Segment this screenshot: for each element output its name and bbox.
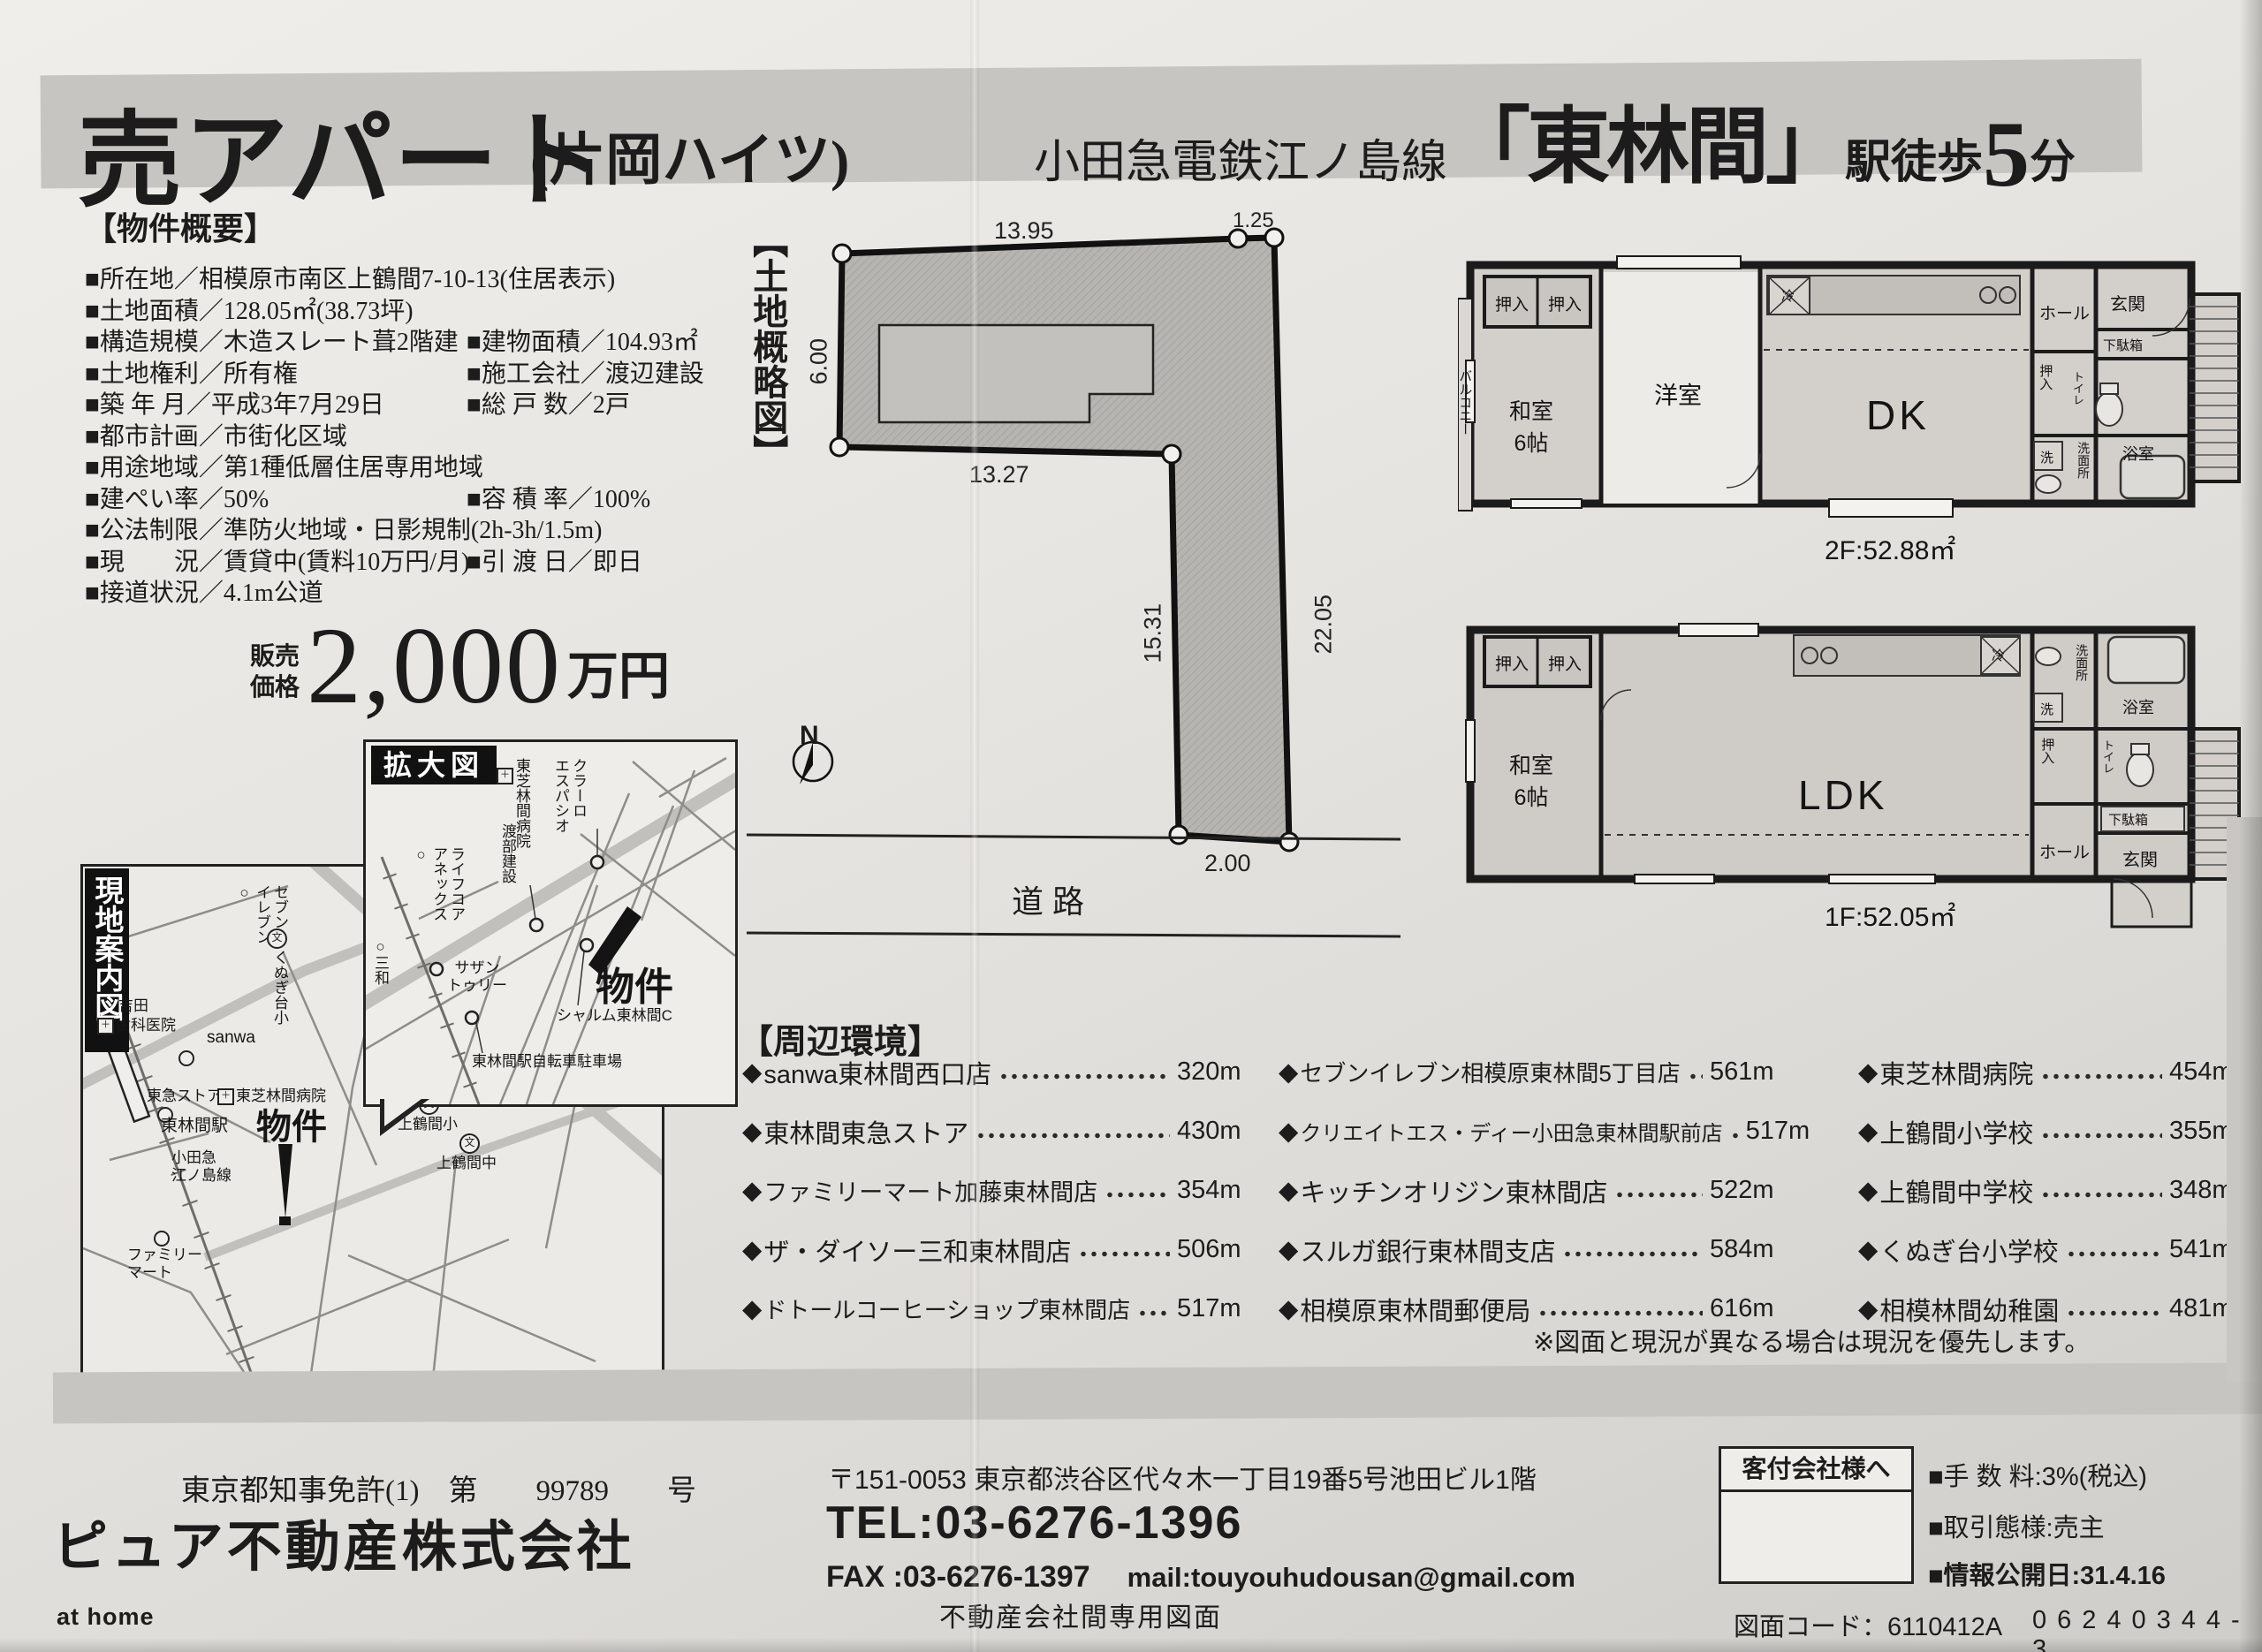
poi-row: ◆東林間東急ストア430m [742,1118,1265,1145]
poi-name: 相模原東林間郵便局 [1300,1291,1530,1328]
poi-row: ◆ファミリーマート加藤東林間店354m [742,1177,1265,1204]
map-label-kamitsuruma-jhs: 上鶴間中 [436,1155,497,1172]
diamond-icon: ◆ [742,1175,762,1206]
poi-name: 東林間東急ストア [763,1113,968,1150]
fixture-washer: 洗 [2040,700,2053,718]
company-name: ピュア不動産株式会社 [53,1502,635,1581]
room-closet: 押入 [1495,292,1529,315]
phone-number: TEL:03-6276-1396 [826,1497,1242,1550]
photo-edge-shadow [0,1638,2262,1652]
north-label: N [800,721,819,751]
diamond-icon: ◆ [742,1057,762,1087]
diamond-icon: ◆ [1279,1293,1298,1324]
map-label-text: 歯科医院 [116,1017,176,1034]
overview-text: ■築 年 月／平成3年7月29日 [85,391,384,419]
room-washroom: 洗面所 [2075,644,2088,706]
poi-distance: 354m [1177,1176,1265,1205]
surroundings-col3: ◆東芝林間病院454m ◆上鶴間小学校355m ◆上鶴間中学校348m ◆くぬぎ… [1858,1058,2258,1354]
poi-row: ◆ドトールコーヒーショップ東林間店517m [742,1295,1265,1322]
poi-name: sanwa東林間西口店 [763,1054,991,1091]
poi-row: ◆上鶴間小学校355m [1858,1118,2258,1145]
poi-circle-icon [178,1050,194,1066]
info-date-line: ■情報公開日:31.4.16 [1928,1555,2166,1592]
dot-leader [2040,1191,2162,1199]
poi-row: ◆ザ・ダイソー三和東林間店506m [742,1236,1265,1263]
overview-row: ■土地権利／所有権■施工会社／渡辺建設 [85,354,792,386]
photo-edge-shadow [2239,0,2262,1652]
map-label-lifecore: ライフコア アネックス○ [412,846,465,935]
enlarged-map-title: 拡大図 [371,746,497,784]
map-label-watanabe: 渡部建設 [498,823,516,894]
map-label-toshiba-hospital: ＋東芝林間病院 [217,1087,326,1105]
agent-box: 客付会社様へ [1719,1446,1914,1584]
map-label-kunugidai: くぬぎ台小 [270,950,288,1038]
diamond-icon: ◆ [742,1116,762,1147]
room-closet: 押入 [2038,364,2052,428]
diamond-icon: ◆ [742,1234,762,1265]
poi-name: クリエイトエス・ディー小田急東林間駅前店 [1300,1116,1722,1147]
dot-leader [2066,1309,2162,1317]
hospital-icon: ＋ [217,1088,234,1105]
map-label-text: 東芝林間病院 [236,1087,326,1104]
bubble-tail [384,1096,425,1126]
poi-distance: 320m [1177,1057,1265,1087]
athome-logo: at home [57,1603,155,1631]
poi-row: ◆東芝林間病院454m [1858,1058,2258,1086]
map-label-yoshida: 吉田 [118,997,148,1015]
poi-row: ◆上鶴間中学校348m [1858,1177,2258,1204]
overview-text: ■建ぺい率／50% [85,486,269,513]
property-mark [279,1216,291,1225]
title-right: 小田急電鉄江ノ島線 「東林間」 駅徒歩 5 分 [1034,80,2147,200]
fee-line: ■手 数 料:3%(税込) [1928,1456,2147,1493]
overview-text: ■施工会社／渡辺建設 [467,354,704,390]
overview-text: ■容 積 率／100% [467,480,650,515]
map-label-southern-tree: サザン トゥリー [447,959,507,995]
fax-mail-line: FAX :03-6276-1397 mail:touyouhudousan@gm… [826,1560,1575,1595]
map-label-charme: シャルム東林間C [557,1007,672,1025]
poi-row: ◆相模林間幼稚園481m [1858,1295,2258,1322]
poi-distance: 561m [1710,1057,1798,1087]
poi-distance: 517m [1177,1294,1265,1323]
overview-row: ■土地面積／128.05㎡(38.73坪) [85,292,792,323]
surroundings-col1: ◆sanwa東林間西口店320m ◆東林間東急ストア430m ◆ファミリーマート… [742,1058,1265,1354]
agent-box-title: 客付会社様へ [1721,1449,1911,1492]
company-address: 〒151-0053 東京都渋谷区代々木一丁目19番5号池田ビル1階 [828,1458,1537,1497]
poi-row: ◆キッチンオリジン東林間店522m [1279,1177,1798,1204]
property-arrow-icon [278,1144,292,1218]
overview-row: ■都市計画／市街化区域 [85,417,792,449]
room-toilet: トイレ [2071,371,2084,426]
diamond-icon: ◆ [1858,1293,1878,1324]
surroundings-col2: ◆セブンイレブン相模原東林間5丁目店561m ◆クリエイトエス・ディー小田急東林… [1279,1058,1798,1354]
overview-section: 【物件概要】 ■所在地／相模原市南区上鶴間7-10-13(住居表示) ■土地面積… [85,203,792,605]
floor-plan-1f: 押入 押入 和室 6帖 LDK 冷 洗面所 洗 押入 ホール 浴室 トイレ 下駄… [1458,614,2244,941]
price-unit: 万円 [567,634,670,716]
poi-name: セブンイレブン相模原東林間5丁目店 [1300,1056,1680,1088]
dot-leader [975,1132,1170,1140]
dim-right: 22.05 [1310,575,1338,655]
overview-text: ■都市計画／市街化区域 [85,423,347,451]
dim-top-right: 1.25 [1233,208,1274,233]
school-icon: 文 [459,1133,480,1154]
rail-line-name: 小田急電鉄江ノ島線 [1034,125,1447,200]
poi-name: 東芝林間病院 [1879,1054,2033,1091]
poi-distance: 522m [1710,1176,1798,1205]
diamond-icon: ◆ [1858,1116,1878,1147]
road-label: 道路 [1012,876,1093,922]
fixture-fridge: 冷 [1992,646,2005,664]
overview-text: ■土地権利／所有権 [85,360,298,388]
room-washitsu: 和室 6帖 [1509,748,1553,812]
map-label-bicycle-parking: 東林間駅自転車駐車場 [472,1053,622,1071]
walk-prefix: 駅徒歩 [1845,125,1983,200]
fax-number: FAX :03-6276-1397 [826,1560,1090,1595]
room-bath: 浴室 [2122,442,2154,465]
floor-area-1f: 1F:52.05㎡ [1825,895,1955,934]
room-closet: 押入 [2039,738,2053,798]
overview-row: ■公法制限／準防火地域・日影規制(2h-3h/1.5m) [85,511,792,542]
poi-distance: 616m [1710,1294,1798,1323]
poi-name: キッチンオリジン東林間店 [1300,1172,1607,1209]
room-shoebox: 下駄箱 [2103,336,2143,354]
map-label-station: 東林間駅 [161,1117,228,1136]
diamond-icon: ◆ [1279,1234,1298,1265]
room-entrance: 玄関 [2122,845,2158,871]
poi-name: 上鶴間中学校 [1879,1172,2033,1209]
poi-name: 上鶴間小学校 [1879,1113,2033,1150]
dot-leader [1562,1250,1703,1258]
overview-text: ■総 戸 数／2戸 [467,385,630,421]
diamond-icon: ◆ [742,1293,762,1324]
land-diagram-svg [747,221,1400,954]
agent-box-blank [1721,1492,1911,1579]
poi-distance: 517m [1746,1117,1834,1146]
room-yoshitsu: 洋室 [1654,376,1702,411]
overview-text: ■公法制限／準防火地域・日影規制(2h-3h/1.5m) [85,517,602,544]
overview-text: ■接道状況／4.1m公道 [85,580,323,607]
dot-leader [2066,1250,2162,1258]
price-label: 販売 価格 [250,641,300,716]
clinic-icon: ＋ [97,1018,114,1034]
diamond-icon: ◆ [1858,1234,1878,1265]
poi-distance: 506m [1177,1235,1265,1264]
room-washroom: 洗面所 [2076,442,2090,500]
overview-text: ■建物面積／104.93㎡ [467,322,698,358]
title-building-name: (片岡ハイツ) [530,115,849,196]
overview-row: ■用途地域／第1種低層住居専用地域 [85,448,792,480]
dot-leader [998,1072,1170,1080]
poi-row: ◆sanwa東林間西口店320m [742,1058,1265,1086]
overview-text: ■用途地域／第1種低層住居専用地域 [85,454,483,481]
school-icon: 文 [267,928,287,949]
poi-distance: 584m [1710,1235,1798,1264]
station-name: 「東林間」 [1447,80,1845,200]
diamond-icon: ◆ [1279,1175,1298,1206]
map-label-sanwa: ○三和 [371,938,389,997]
overview-row: ■現 況／賃貸中(賃料10万円/月)■引 渡 日／即日 [85,542,792,574]
dot-leader [1730,1132,1739,1140]
room-closet: 押入 [1548,292,1582,315]
dot-leader [2040,1072,2162,1080]
room-hall: ホール [2039,839,2090,863]
price-amount: 2,000 [307,617,562,716]
overview-row: ■構造規模／木造スレート葺2階建■建物面積／104.93㎡ [85,322,792,354]
dim-top: 13.95 [994,217,1054,245]
poi-row: ◆くぬぎ台小学校541m [1858,1236,2258,1263]
poi-name: スルガ銀行東林間支店 [1300,1231,1555,1269]
poi-row: ◆セブンイレブン相模原東林間5丁目店561m [1279,1058,1798,1086]
map-label-odakyu-line: 小田急 江ノ島線 [171,1149,232,1185]
map-label-claro: クラーロ エスパシオ [551,758,587,843]
land-diagram: 13.95 1.25 6.00 13.27 15.31 22.05 2.00 道… [747,221,1400,954]
floor-plan-2f: バルコニー 押入 押入 和室 6帖 洋室 DK 冷 ホール 玄関 下駄箱 押入 … [1458,246,2244,586]
poi-row: ◆相模原東林間郵便局616m [1279,1295,1798,1322]
overview-text: ■引 渡 日／即日 [467,542,642,578]
disclaimer-note: ※図面と現況が異なる場合は現況を優先します。 [1533,1322,2090,1359]
room-closet: 押入 [1548,651,1582,675]
dot-leader [1537,1309,1703,1317]
room-dk: DK [1866,391,1930,439]
land-parcel [839,238,1289,842]
room-toilet: トイレ [2101,739,2114,796]
walk-minutes: 5 [1983,110,2030,200]
dim-bottom: 2.00 [1204,850,1251,877]
diamond-icon: ◆ [1279,1116,1298,1147]
overview-text: ■土地面積／128.05㎡(38.73坪) [85,298,414,325]
room-washitsu: 和室 6帖 [1509,394,1553,458]
overview-row: ■接道状況／4.1m公道 [85,573,792,605]
diamond-icon: ◆ [1858,1175,1878,1206]
room-closet: 押入 [1495,651,1529,675]
poi-circle-icon [154,1231,170,1247]
overview-heading: 【物件概要】 [85,203,792,249]
overview-row: ■建ぺい率／50%■容 積 率／100% [85,480,792,512]
room-entrance: 玄関 [2110,290,2145,315]
dot-leader [2040,1132,2162,1140]
fixture-fridge: 冷 [1781,286,1795,305]
separator-band [53,1363,2262,1424]
flyer-page: 売アパート (片岡ハイツ) 小田急電鉄江ノ島線 「東林間」 駅徒歩 5 分 【物… [0,0,2262,1652]
overview-text: ■構造規模／木造スレート葺2階建 [85,329,459,356]
dot-leader [1104,1191,1170,1199]
enlarged-map: 拡大図 ＋ 東芝林間病院 クラーロ エスパシオ 渡部建設 ライフコア アネックス… [363,739,738,1107]
poi-distance: 430m [1177,1117,1265,1146]
diamond-icon: ◆ [1858,1057,1878,1087]
dim-inner: 15.31 [1140,584,1167,663]
map-label-familymart: ファミリー マート [127,1247,202,1282]
mail-address: mail:touyouhudousan@gmail.com [1127,1562,1575,1594]
room-hall: ホール [2039,300,2090,324]
room-ldk: LDK [1798,771,1887,819]
price-block: 販売 価格 2,000 万円 [250,617,670,716]
poi-row: ◆クリエイトエス・ディー小田急東林間駅前店517m [1279,1118,1798,1145]
room-balcony: バルコニー [1457,369,1471,519]
map-label-yoshida-dental: ＋歯科医院 [97,1017,176,1034]
map-label-property: 物件 [596,965,673,1011]
map-label-sanwa: sanwa [207,1028,255,1048]
dot-leader [1078,1250,1170,1258]
dot-leader [1614,1191,1703,1199]
walk-suffix: 分 [2030,125,2076,200]
dot-leader [1137,1309,1170,1317]
overview-text: ■所在地／相模原市南区上鶴間7-10-13(住居表示) [85,266,615,293]
poi-name: ドトールコーヒーショップ東林間店 [763,1292,1130,1325]
clinic-icon: ＋ [497,768,513,784]
map-label-property: 物件 [256,1107,327,1148]
dot-leader [1688,1072,1703,1080]
overview-row: ■所在地／相模原市南区上鶴間7-10-13(住居表示) [85,260,792,292]
transaction-line: ■取引態様:売主 [1928,1507,2105,1544]
poi-name: ファミリーマート加藤東林間店 [763,1173,1097,1208]
dim-left: 6.00 [806,314,833,385]
overview-text: ■現 況／賃貸中(賃料10万円/月) [85,549,469,576]
map-label-tokyu-store: 東急ストア [147,1087,222,1105]
document-type: 不動産会社間専用図面 [939,1595,1222,1634]
floor-area-2f: 2F:52.88㎡ [1825,528,1955,567]
poi-row: ◆スルガ銀行東林間支店584m [1279,1236,1798,1263]
poi-name: ザ・ダイソー三和東林間店 [763,1231,1071,1269]
room-bath: 浴室 [2122,695,2154,718]
overview-row: ■築 年 月／平成3年7月29日■総 戸 数／2戸 [85,385,792,417]
poi-name: くぬぎ台小学校 [1879,1231,2058,1269]
paper-crease [970,0,979,1652]
room-shoebox: 下駄箱 [2108,810,2148,829]
diamond-icon: ◆ [1279,1057,1298,1087]
fixture-washer: 洗 [2040,448,2053,466]
